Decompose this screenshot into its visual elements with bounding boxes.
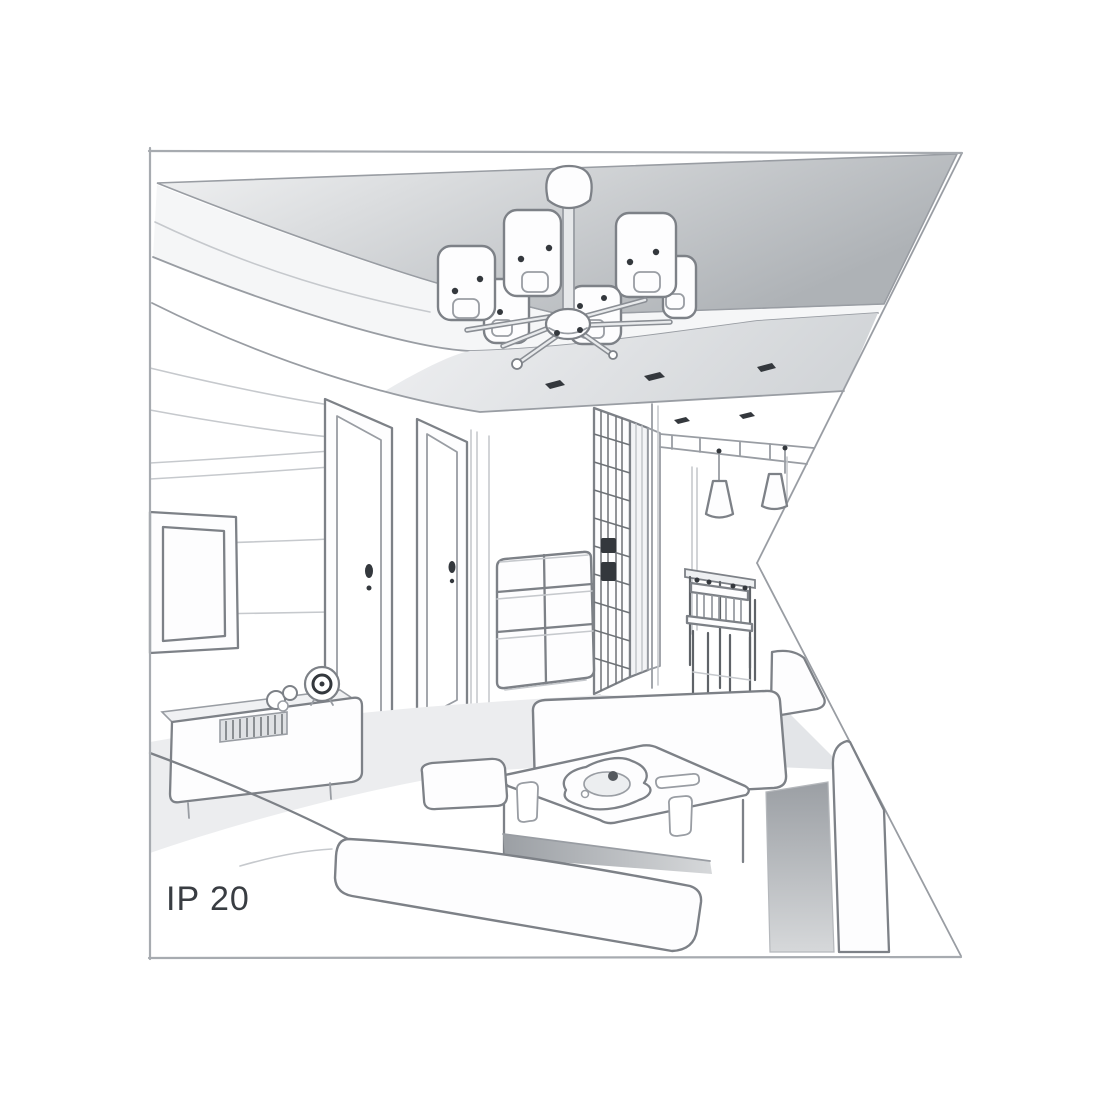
door-2 [417, 419, 467, 730]
wardrobe [594, 408, 660, 694]
door-handle [365, 564, 373, 578]
door-handle [449, 561, 456, 573]
wardrobe-handle [601, 538, 616, 553]
cabinet-leg [330, 783, 331, 799]
sofa-armrest-right [833, 741, 889, 952]
chandelier-hub [546, 309, 590, 339]
pendant-lamp [762, 446, 788, 510]
door-keyhole [450, 579, 454, 583]
wall-panel-line [150, 467, 330, 479]
wall-panel-line [150, 368, 330, 405]
small-bowl [582, 791, 589, 798]
lamp-shade [504, 210, 561, 296]
ceiling-spotlight [739, 412, 755, 419]
sofa-fold-line [240, 849, 332, 866]
left-wall [150, 368, 333, 693]
pendant-cone-shade [762, 474, 787, 509]
lamp-shade [438, 246, 495, 320]
door-leaf [427, 434, 457, 716]
cup [517, 782, 538, 822]
cabinet-leg [188, 803, 189, 818]
ceiling-canopy [546, 166, 591, 208]
chest-of-drawers [497, 552, 594, 690]
wardrobe-handle [601, 562, 616, 581]
wall-panel-line [150, 410, 330, 437]
dining-beam [660, 434, 814, 464]
ip-rating-label: IP 20 [166, 880, 250, 919]
sofa-armrest-end [422, 759, 507, 809]
pendant-lamp [706, 449, 733, 518]
wardrobe-side [630, 421, 648, 677]
room-illustration [0, 0, 1100, 1100]
hallway [497, 404, 814, 729]
door-leaf [337, 416, 381, 737]
chandelier-stem [563, 200, 574, 312]
ceiling-spotlight [674, 417, 690, 424]
teapot [608, 771, 618, 781]
cup [669, 796, 692, 836]
tv-frame-inner [163, 527, 225, 641]
lamp-shade [616, 213, 676, 297]
product-context-illustration: IP 20 [0, 0, 1100, 1100]
wall-panel-line [150, 451, 330, 463]
pendant-cone-shade [706, 481, 733, 518]
sofa-side-shadow [766, 782, 834, 952]
door-keyhole [367, 586, 372, 591]
